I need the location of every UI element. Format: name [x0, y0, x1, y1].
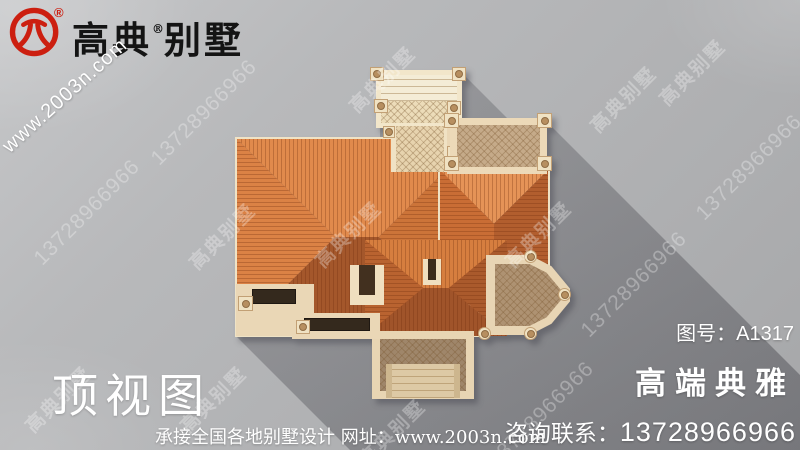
registered-mark: ®: [152, 22, 164, 36]
bay-octagon-floor: [495, 264, 561, 326]
footer-url: www.2003n.com: [395, 427, 546, 448]
ledge-left-pillar: [296, 320, 310, 334]
roof-center: [365, 240, 507, 336]
brand-logo-mark: ®: [8, 5, 64, 61]
bay-pillar-s: [524, 327, 537, 340]
drawing-number-value: A1317: [736, 323, 794, 345]
porch-left-window: [252, 289, 296, 304]
terrace-right-pillar-nw: [444, 113, 459, 128]
footer-service-text: 承接全国各地别墅设计: [155, 427, 335, 448]
brand-name-part2: 别墅: [164, 18, 244, 62]
registered-mark-icon: ®: [54, 5, 64, 20]
roof-lightwell: [350, 265, 384, 305]
terrace-top-pillar-ne: [452, 67, 466, 81]
brand-tagline: 高端典雅: [635, 358, 795, 403]
terrace-right-floor: [457, 125, 540, 167]
walkway-pillar-w: [383, 126, 395, 138]
porch-left-pillar: [238, 296, 253, 311]
drawing-number-label: 图号：: [676, 323, 736, 345]
roof-dormer: [423, 259, 441, 285]
terrace-right-pillar-ne: [537, 113, 552, 128]
contact-phone: 13728966966: [620, 417, 796, 447]
terrace-right-pillar-se: [537, 156, 552, 171]
bay-pillar-e: [558, 288, 571, 301]
drawing-number: 图号：A1317: [676, 317, 794, 346]
view-title: 顶视图: [52, 360, 211, 426]
walkway-top: [391, 126, 449, 172]
contact-line: 咨询联系：13728966966: [505, 414, 796, 448]
poster-canvas: 13728966966 13728966966 高典别墅 高典别墅 高典别墅 1…: [0, 0, 800, 450]
bay-pillar-sw: [478, 327, 491, 340]
terrace-bottom-steps: [386, 364, 460, 398]
terrace-right-pillar-sw: [444, 156, 459, 171]
ledge-left-window: [304, 318, 370, 331]
terrace-right: [450, 118, 547, 174]
footer-line: 承接全国各地别墅设计 网址：www.2003n.com: [155, 423, 546, 449]
footer-url-label: 网址：: [341, 427, 395, 448]
